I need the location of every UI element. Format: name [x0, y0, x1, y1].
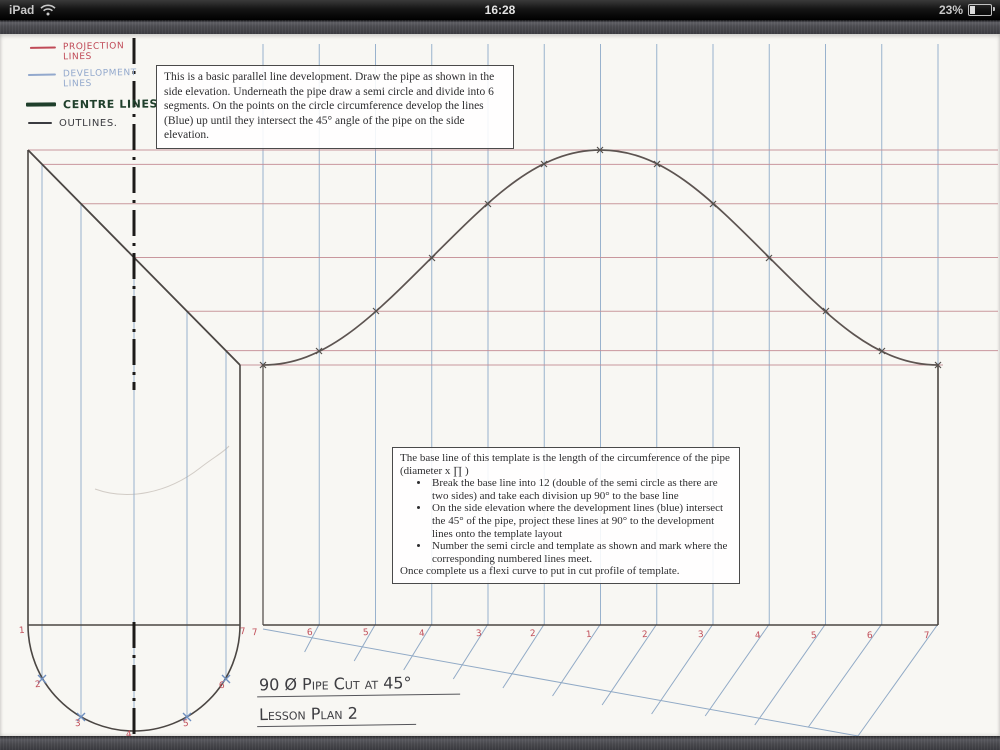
template-number: 3 [698, 630, 704, 640]
legend-label: Centre Lines [63, 97, 158, 111]
template-number: 1 [586, 630, 592, 640]
letterbox-top [0, 20, 1000, 34]
note-bullets: Break the base line into 12 (double of t… [400, 477, 732, 565]
battery-percent: 23% [939, 3, 963, 17]
centre-line-swatch [26, 102, 56, 106]
template-number: 4 [419, 629, 425, 639]
legend-item-outlines: Outlines. [28, 118, 118, 129]
template-number: 2 [530, 629, 536, 639]
outlines [28, 150, 938, 731]
semicircle-number: 2 [35, 680, 41, 690]
photo-of-drawing[interactable]: Projection Lines Development Lines Centr… [0, 0, 1000, 750]
legend-item-projection-lines: Projection Lines [30, 41, 139, 63]
legend-item-development-lines: Development Lines [28, 68, 139, 90]
development-line-swatch [28, 73, 56, 75]
battery-icon [968, 4, 992, 16]
template-number: 7 [924, 631, 930, 641]
erased-arc [95, 446, 229, 494]
semicircle-number: 3 [75, 719, 81, 729]
legend-label: Outlines. [59, 118, 118, 129]
outline-swatch [28, 122, 52, 124]
ipad-screen: iPad 16:28 23% [0, 0, 1000, 750]
clock: 16:28 [0, 3, 1000, 17]
letterbox-bottom [0, 736, 1000, 750]
template-number: 4 [755, 631, 761, 641]
note-bullet: On the side elevation where the developm… [430, 502, 732, 540]
template-number: 5 [811, 631, 817, 641]
template-number: 6 [307, 628, 313, 638]
semicircle-number: 6 [219, 681, 225, 691]
template-number: 6 [867, 631, 873, 641]
note-outro: Once complete us a flexi curve to put in… [400, 565, 732, 578]
legend-label: Development Lines [63, 68, 139, 89]
semicircle-number: 1 [19, 626, 25, 636]
instruction-note-template: The base line of this template is the le… [392, 447, 740, 584]
note-bullet: Number the semi circle and template as s… [430, 540, 732, 565]
semicircle-number: 7 [240, 627, 246, 637]
status-bar: iPad 16:28 23% [0, 0, 1000, 20]
legend-label: Projection Lines [63, 41, 139, 62]
projection-line-swatch [30, 46, 56, 48]
semicircle-number: 5 [183, 719, 189, 729]
template-number: 7 [252, 628, 258, 638]
note-bullet: Break the base line into 12 (double of t… [430, 477, 732, 502]
drawing-title: 90 Ø Pipe Cut at 45° [257, 673, 460, 698]
note-text: This is a basic parallel line developmen… [164, 71, 494, 141]
template-number: 2 [642, 630, 648, 640]
instruction-note-side-elevation: This is a basic parallel line developmen… [156, 65, 514, 149]
lesson-plan-label: Lesson Plan 2 [257, 703, 416, 727]
template-number: 5 [363, 628, 369, 638]
legend-item-centre-lines: Centre Lines [26, 97, 158, 111]
template-number: 3 [476, 629, 482, 639]
note-intro: The base line of this template is the le… [400, 452, 732, 477]
